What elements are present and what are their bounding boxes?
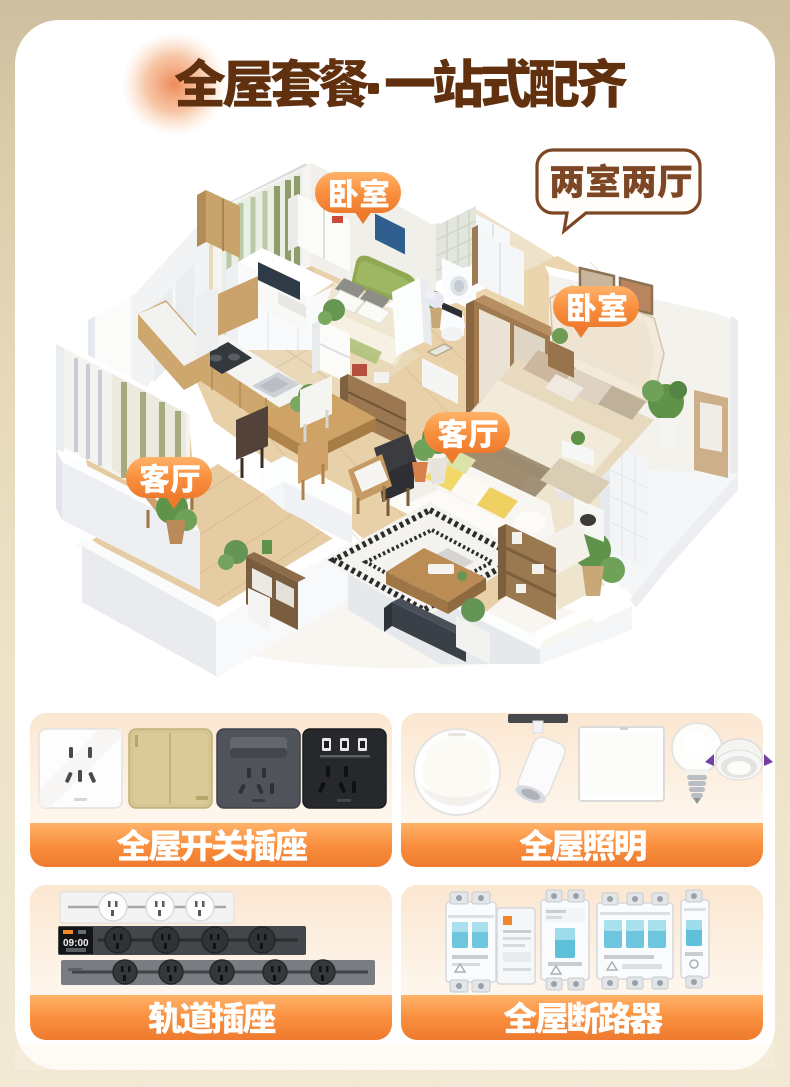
svg-text:09:00: 09:00: [63, 938, 89, 949]
